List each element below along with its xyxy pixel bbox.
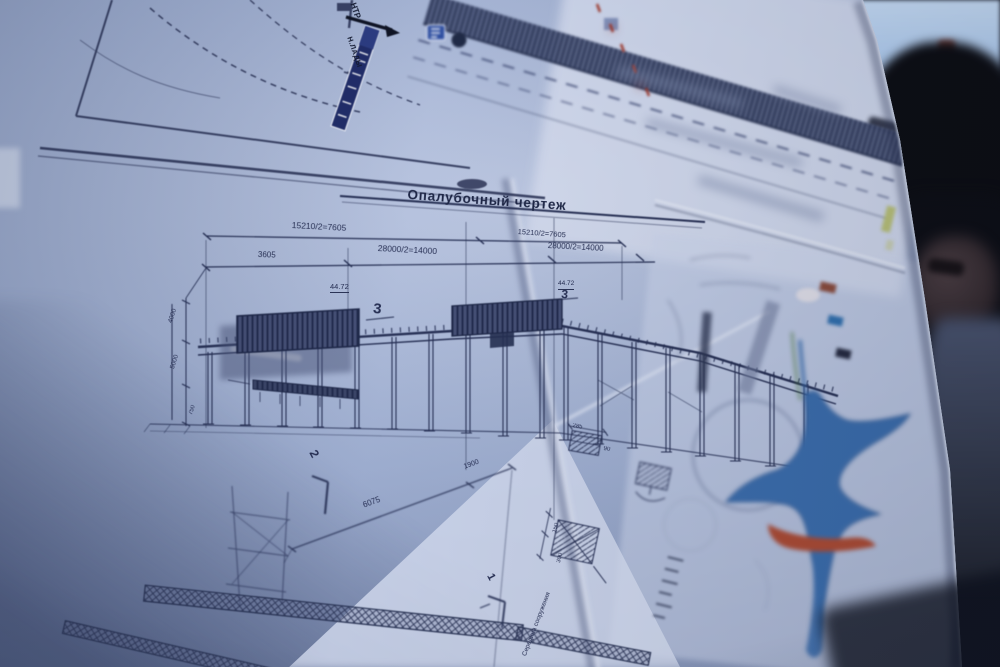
right-sheet-overlap-edge (655, 200, 905, 273)
site-plan-scribbles (664, 255, 803, 610)
girder-callout: 3 (372, 301, 382, 317)
blueprint-paper: Опалубочный чертеж 15210/2=7605 15210/2=… (0, 0, 1000, 667)
dim-label: 3605 (258, 251, 276, 260)
detail-c (633, 462, 672, 504)
elevation-mark: 44.72 (330, 283, 349, 293)
map-legend-swatches (796, 205, 896, 359)
approach-span (228, 380, 358, 409)
detail-b (534, 507, 619, 583)
road-sign-plate (331, 17, 400, 131)
girder-callout: 3 (561, 288, 569, 301)
photo-of-blueprint-board: Опалубочный чертеж 15210/2=7605 15210/2=… (0, 0, 1000, 667)
deck-plan-band-1 (144, 585, 524, 641)
spec-text-rows (653, 556, 684, 620)
deck-plan-band-2 (62, 621, 318, 667)
sign-arrowhead (385, 25, 400, 37)
lower-plan (226, 464, 516, 667)
girder-blocks (220, 299, 562, 380)
blueprint-linework (0, 0, 1000, 667)
detail-dim: 90 (603, 446, 611, 453)
